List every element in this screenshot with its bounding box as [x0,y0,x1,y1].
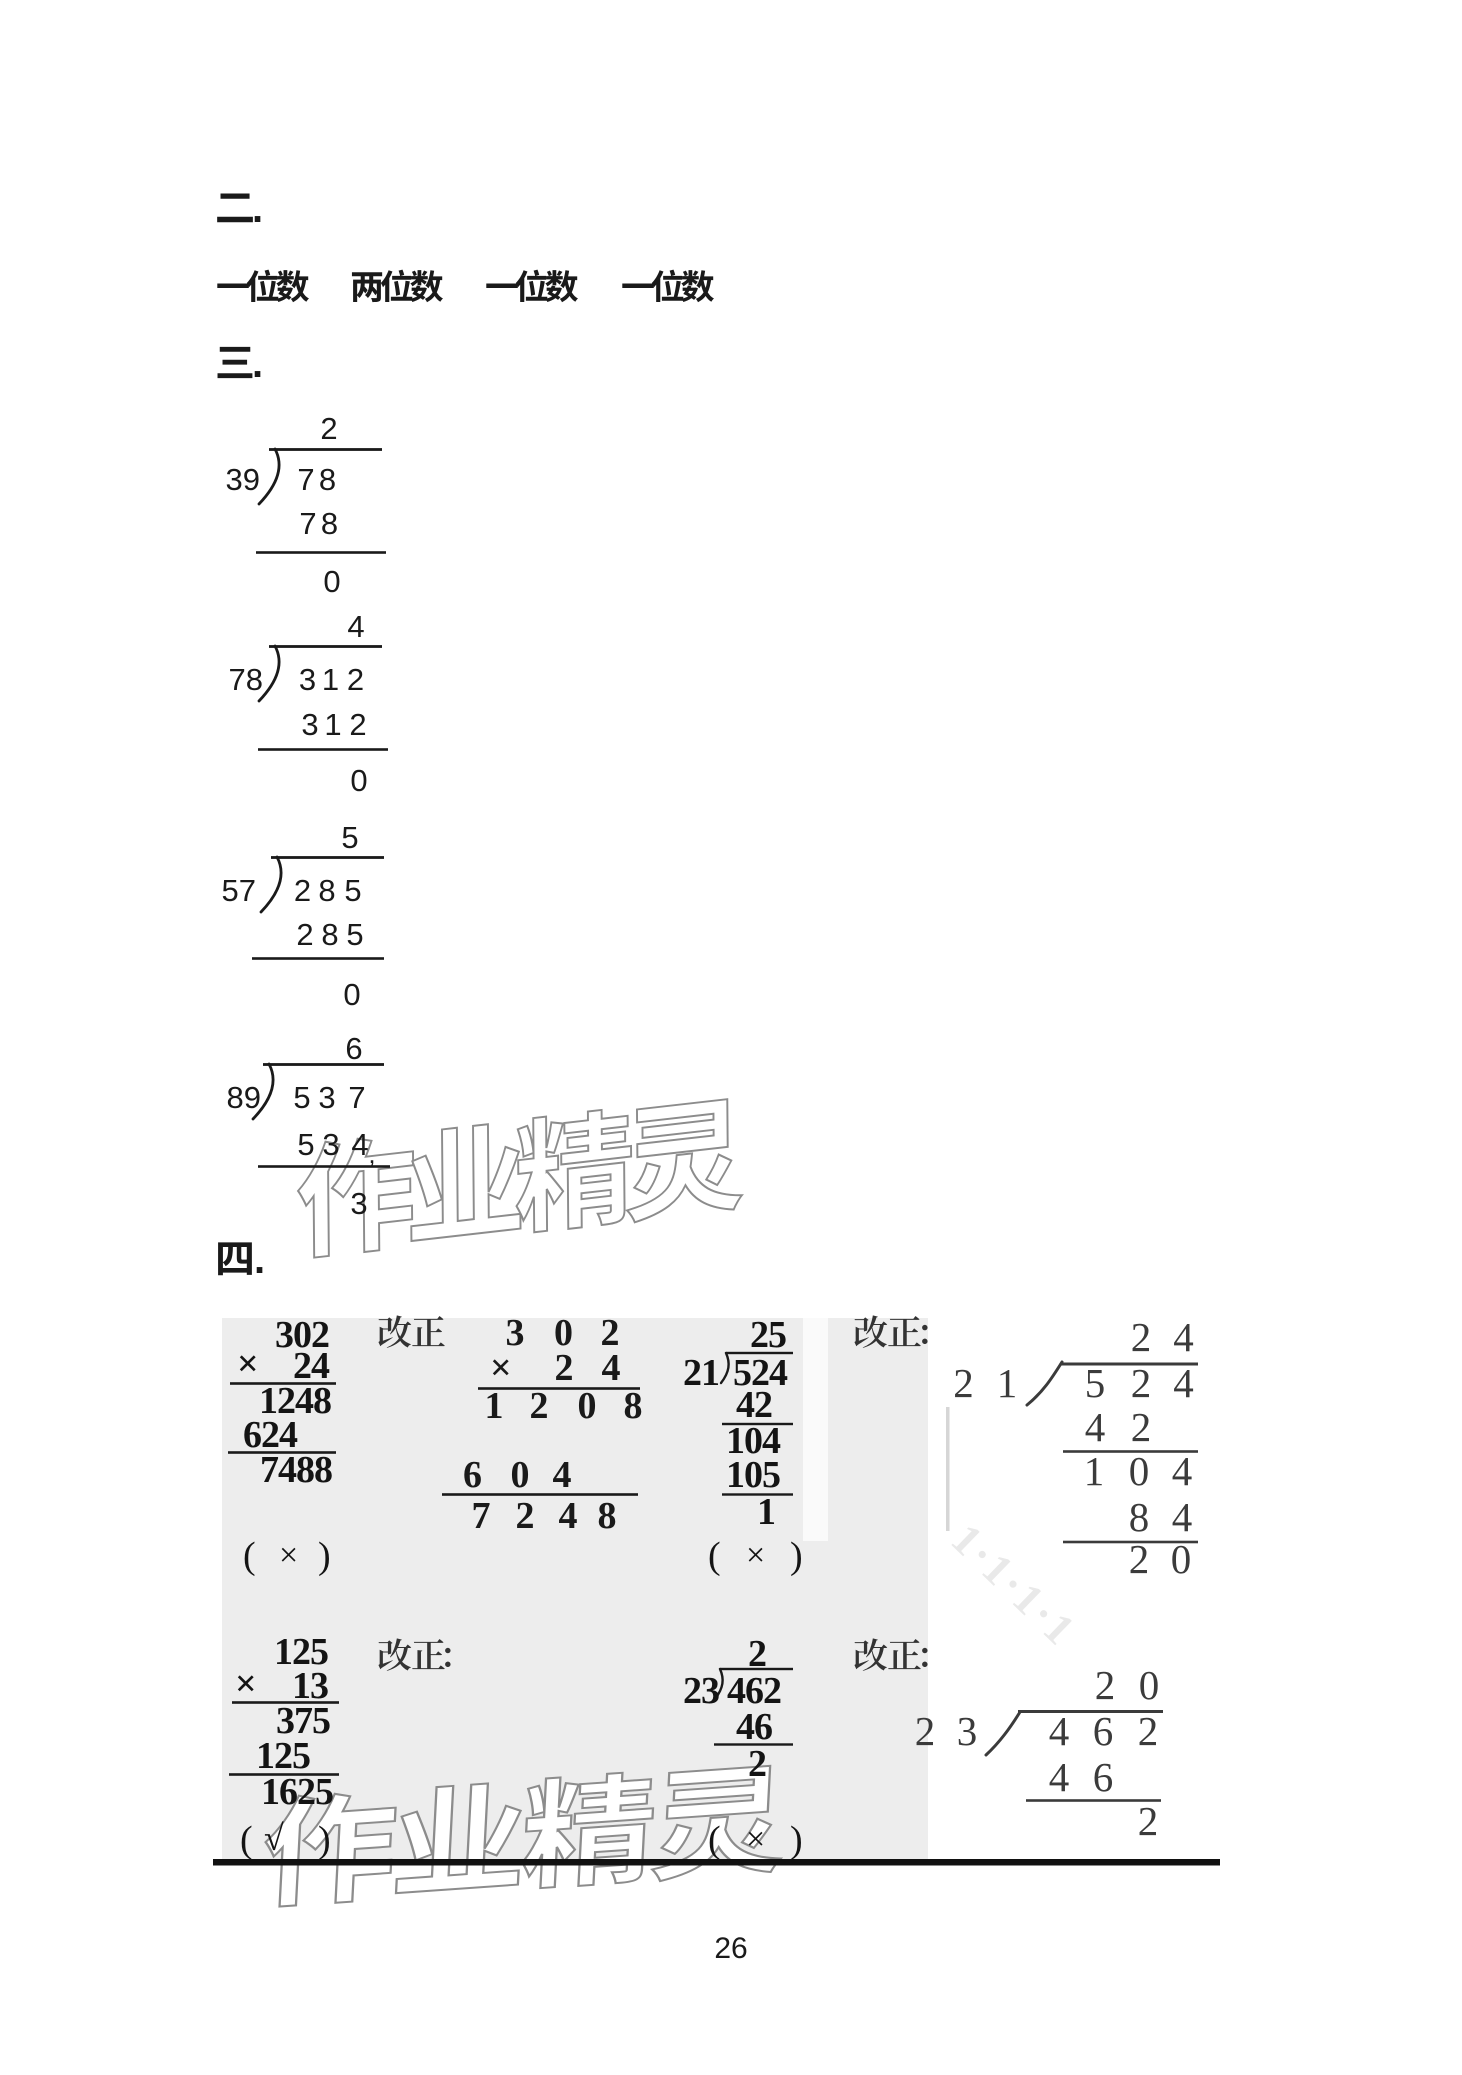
svg-text:2: 2 [1131,1404,1152,1450]
svg-text:21: 21 [683,1352,719,1394]
svg-text:3: 3 [318,1080,335,1115]
svg-text:4: 4 [1049,1754,1070,1800]
svg-text:4: 4 [1049,1708,1070,1754]
svg-text:4: 4 [553,1454,572,1496]
svg-text:2: 2 [953,1360,974,1406]
svg-text:(: ( [243,1535,255,1577]
svg-text:×: × [746,1821,764,1858]
svg-text:4: 4 [559,1495,578,1537]
svg-text:4: 4 [602,1347,621,1389]
svg-text:6: 6 [1093,1708,1114,1754]
svg-text:×: × [235,1663,256,1705]
svg-text:39: 39 [226,462,260,497]
svg-text:46: 46 [736,1706,772,1748]
svg-text:8: 8 [321,917,338,952]
svg-text:7: 7 [472,1495,491,1537]
svg-text:2: 2 [1095,1662,1116,1708]
svg-text:2: 2 [294,873,311,908]
svg-text:.: . [252,342,263,386]
svg-text:4: 4 [1172,1494,1193,1540]
svg-text:5: 5 [346,917,363,952]
svg-text:3: 3 [301,707,318,742]
svg-text:6: 6 [1093,1754,1114,1800]
svg-text:2: 2 [1131,1314,1152,1360]
svg-text:0: 0 [323,564,340,599]
svg-text:4: 4 [351,1127,368,1162]
svg-text:2: 2 [1129,1536,1150,1582]
svg-text:×: × [490,1347,512,1389]
svg-text:0: 0 [1171,1536,1192,1582]
svg-text:7: 7 [348,1080,365,1115]
svg-text:0: 0 [350,763,367,798]
svg-text:): ) [790,1535,802,1577]
svg-text:5: 5 [1085,1360,1106,1406]
svg-text:(: ( [708,1535,720,1577]
svg-text:25: 25 [750,1314,786,1356]
svg-text:×: × [237,1343,258,1385]
svg-text:2: 2 [530,1385,549,1427]
svg-text:26: 26 [714,1932,747,1965]
svg-text:8: 8 [1129,1494,1150,1540]
svg-text:√: √ [264,1818,284,1858]
svg-text:1: 1 [324,707,341,742]
svg-text:5: 5 [297,1127,314,1162]
svg-text:89: 89 [227,1080,261,1115]
svg-text:(: ( [240,1819,252,1861]
svg-text:): ) [318,1819,330,1861]
svg-text:5: 5 [293,1080,310,1115]
svg-text:): ) [318,1535,330,1577]
svg-text:4: 4 [347,609,364,644]
svg-text:×: × [279,1537,297,1574]
svg-text:7: 7 [297,462,314,497]
svg-text:1: 1 [485,1385,504,1427]
svg-text:4: 4 [1172,1448,1193,1494]
svg-text:×: × [746,1537,764,1574]
svg-text:8: 8 [598,1495,617,1537]
svg-text:4: 4 [1173,1360,1194,1406]
svg-text:.: . [252,187,263,231]
svg-text:2: 2 [349,707,366,742]
svg-text:.: . [254,1238,265,1282]
svg-text:1: 1 [997,1360,1018,1406]
svg-text:1: 1 [757,1491,775,1533]
svg-text:3: 3 [957,1708,978,1754]
svg-text:2: 2 [1138,1798,1159,1844]
svg-text:0: 0 [1129,1448,1150,1494]
svg-text:78: 78 [229,662,263,697]
svg-text:2: 2 [1131,1360,1152,1406]
svg-text:7: 7 [299,506,316,541]
svg-text:2: 2 [1138,1708,1159,1754]
svg-text:1625: 1625 [261,1771,333,1813]
svg-text:7488: 7488 [260,1449,332,1491]
svg-text:3: 3 [350,1186,367,1221]
svg-text:2: 2 [516,1495,535,1537]
svg-text:8: 8 [624,1385,643,1427]
svg-text:1: 1 [322,662,339,697]
svg-text:8: 8 [318,873,335,908]
svg-text:3: 3 [299,662,316,697]
svg-text:2: 2 [555,1347,574,1389]
svg-text:105: 105 [726,1454,780,1496]
svg-text:2: 2 [915,1708,936,1754]
svg-text:2: 2 [347,662,364,697]
svg-text:2: 2 [296,917,313,952]
svg-text:0: 0 [343,977,360,1012]
svg-text:0: 0 [1139,1662,1160,1708]
svg-text:,: , [368,1139,375,1169]
svg-text:(: ( [708,1819,720,1861]
svg-text:6: 6 [463,1454,482,1496]
svg-text:8: 8 [321,506,338,541]
svg-text:4: 4 [1085,1404,1106,1450]
svg-text:5: 5 [344,873,361,908]
svg-text:0: 0 [578,1385,597,1427]
svg-text:23: 23 [683,1670,719,1712]
svg-text:0: 0 [511,1454,530,1496]
svg-text:5: 5 [341,820,358,855]
svg-text:): ) [790,1819,802,1861]
svg-text:2: 2 [748,1633,766,1675]
svg-text:2: 2 [748,1743,766,1785]
svg-text:6: 6 [345,1031,362,1066]
svg-text:4: 4 [1173,1314,1194,1360]
svg-text:57: 57 [222,873,256,908]
svg-text:3: 3 [322,1127,339,1162]
svg-text:8: 8 [319,462,336,497]
svg-text:2: 2 [320,411,337,446]
svg-text:1: 1 [1084,1448,1105,1494]
